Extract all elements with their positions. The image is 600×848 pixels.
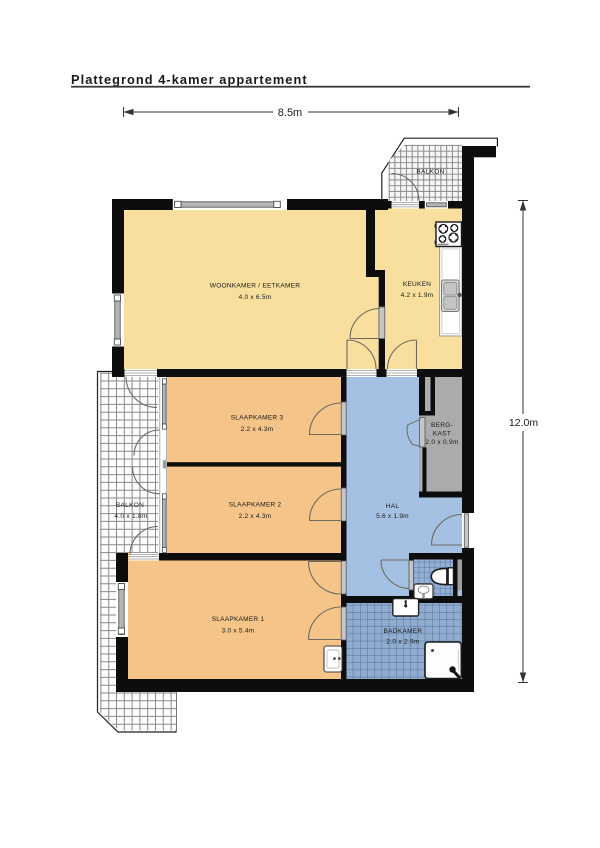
svg-text:HAL: HAL (386, 503, 400, 510)
svg-text:BERG-: BERG- (431, 422, 453, 429)
svg-text:KAST: KAST (433, 431, 451, 438)
svg-text:WOONKAMER / EETKAMER: WOONKAMER / EETKAMER (210, 283, 300, 290)
svg-text:BALKON: BALKON (416, 169, 444, 176)
svg-text:SLAAPKAMER 2: SLAAPKAMER 2 (229, 502, 282, 509)
svg-text:2.0 x 2.9m: 2.0 x 2.9m (386, 639, 419, 646)
svg-text:Plattegrond 4-kamer appartemen: Plattegrond 4-kamer appartement (71, 72, 308, 87)
svg-text:BADKAMER: BADKAMER (384, 628, 423, 635)
svg-text:4.0 x 6.5m: 4.0 x 6.5m (239, 294, 272, 301)
svg-text:12.0m: 12.0m (509, 417, 538, 429)
svg-text:2.2 x 4.3m: 2.2 x 4.3m (239, 513, 272, 520)
svg-text:BALKON: BALKON (116, 502, 144, 509)
svg-text:8.5m: 8.5m (278, 107, 302, 119)
svg-text:4.2 x 1.9m: 4.2 x 1.9m (401, 292, 434, 299)
svg-text:SLAAPKAMER 3: SLAAPKAMER 3 (231, 415, 284, 422)
svg-text:SLAAPKAMER 1: SLAAPKAMER 1 (212, 616, 265, 623)
svg-text:5.6 x 1.9m: 5.6 x 1.9m (376, 513, 409, 520)
svg-text:2.2 x 4.3m: 2.2 x 4.3m (241, 426, 274, 433)
svg-text:2.0 x 0.9m: 2.0 x 0.9m (425, 439, 458, 446)
svg-text:KEUKEN: KEUKEN (403, 281, 431, 288)
svg-text:3.0 x 5.4m: 3.0 x 5.4m (222, 628, 255, 635)
svg-text:4.0 x 1.8m: 4.0 x 1.8m (114, 513, 147, 520)
